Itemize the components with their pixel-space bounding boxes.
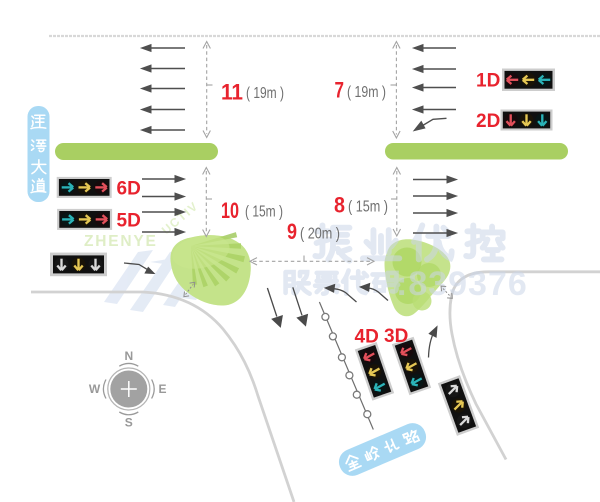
- svg-text:7: 7: [335, 78, 345, 103]
- svg-text:2D: 2D: [476, 111, 500, 132]
- svg-text:11: 11: [221, 80, 243, 105]
- svg-text:N: N: [124, 349, 133, 363]
- svg-text:6D: 6D: [117, 179, 141, 200]
- svg-text:E: E: [158, 382, 166, 396]
- svg-text:8: 8: [334, 193, 345, 218]
- svg-text:1D: 1D: [476, 71, 500, 92]
- svg-text:5D: 5D: [117, 211, 141, 232]
- svg-text:4D: 4D: [355, 327, 379, 348]
- svg-text:W: W: [89, 382, 101, 396]
- svg-text:9: 9: [287, 219, 297, 244]
- svg-text:3D: 3D: [384, 326, 408, 347]
- svg-text:( 20m ): ( 20m ): [300, 226, 340, 243]
- svg-text:( 15m ): ( 15m ): [245, 204, 283, 221]
- svg-text:( 19m ): ( 19m ): [347, 84, 386, 101]
- svg-text:( 15m ): ( 15m ): [348, 199, 388, 216]
- svg-text:ZHENYE: ZHENYE: [84, 233, 158, 250]
- svg-text:( 19m ): ( 19m ): [246, 85, 284, 102]
- svg-text::839376: :839376: [396, 265, 528, 303]
- svg-text:10: 10: [221, 198, 239, 223]
- svg-text:S: S: [125, 416, 133, 430]
